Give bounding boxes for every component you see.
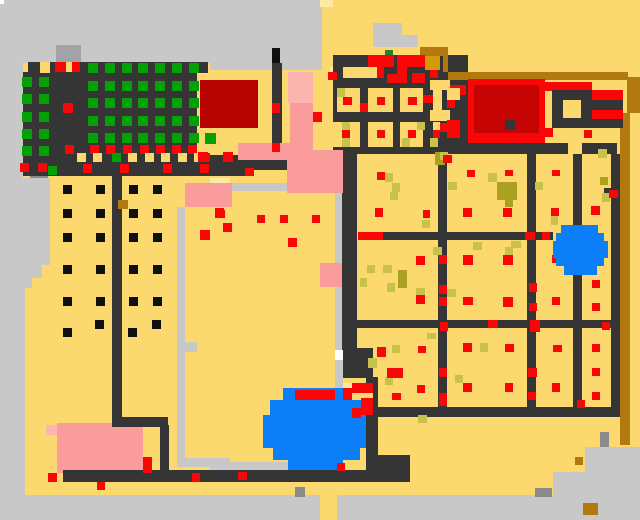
map-canvas (0, 0, 640, 520)
game-world-map (0, 0, 640, 520)
